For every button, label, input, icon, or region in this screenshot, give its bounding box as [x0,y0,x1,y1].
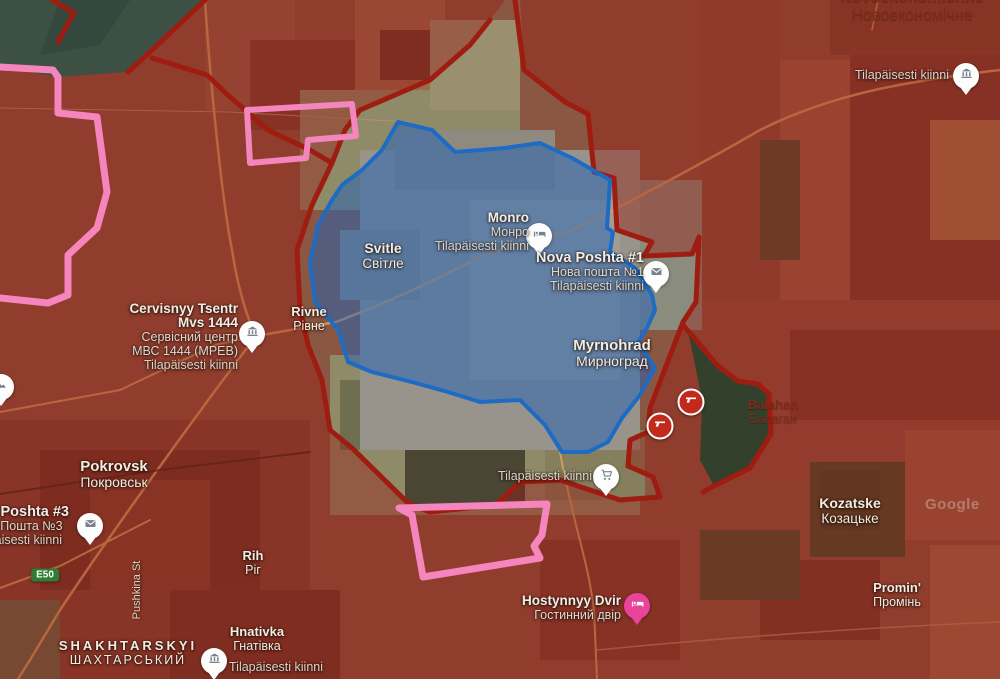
gun-icon [684,392,699,412]
map-canvas[interactable]: Novoekonomichne Новоекономічне Svitle Св… [0,0,1000,679]
satellite-layer [0,0,1000,679]
bank-icon [245,324,260,344]
gun-icon [653,416,668,436]
road-badge-e50: E50 [31,569,59,582]
map-attribution: Google [925,496,980,513]
poi-pin-store[interactable] [593,464,619,490]
combat-marker-gun[interactable] [647,413,674,440]
envelope-icon [649,264,664,284]
bank-icon [959,66,974,86]
bed-icon [630,596,645,616]
mountain-icon [0,377,9,397]
poi-pin-hnativka[interactable] [201,648,227,674]
poi-pin-novoekonomichne[interactable] [953,63,979,89]
poi-pin-nova-poshta-1[interactable] [643,261,669,287]
combat-marker-gun[interactable] [678,389,705,416]
poi-pin-monro[interactable] [526,223,552,249]
envelope-icon [83,516,98,536]
poi-pin-hostynnyy[interactable] [624,593,650,619]
cart-icon [599,467,614,487]
poi-pin-nova-poshta-3[interactable] [77,513,103,539]
street-label-pushkina: Pushkina St [131,561,143,620]
bed-icon [532,226,547,246]
poi-pin-cervisnyy[interactable] [239,321,265,347]
bank-icon [207,651,222,671]
